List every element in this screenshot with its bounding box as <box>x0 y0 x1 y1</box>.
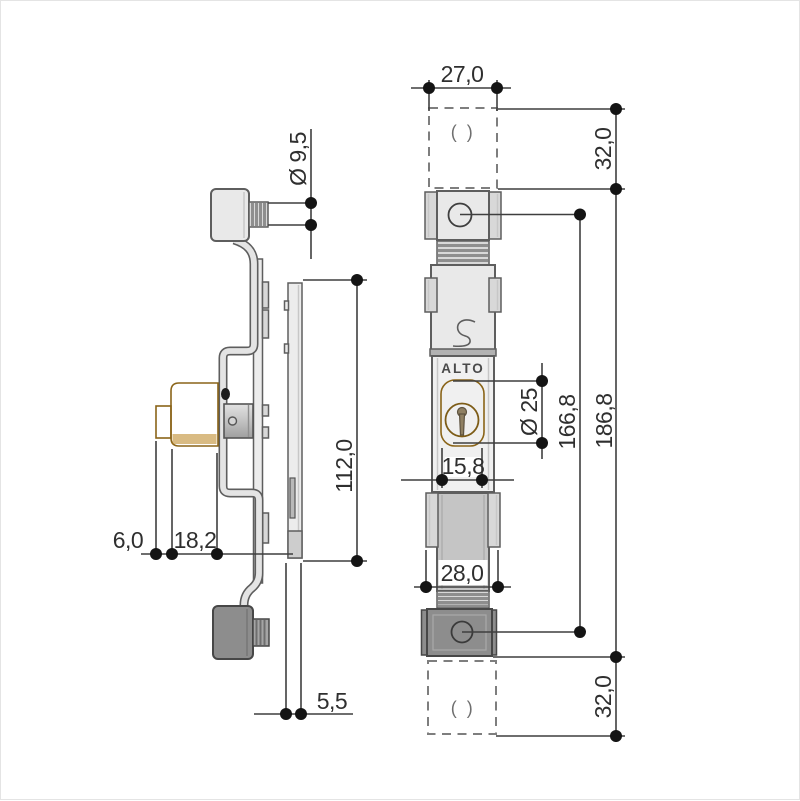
drawing-page: Ø 9,5 112,0 6,0 18,2 <box>0 0 800 800</box>
dim-total-length-label: 186,8 <box>591 393 617 448</box>
divider-bar <box>430 349 496 356</box>
dim-plate-height-label: 112,0 <box>331 439 357 492</box>
dim-cylinder-body-label: 18,2 <box>174 527 217 553</box>
dim-hole-pitch-label: 166,8 <box>554 394 580 449</box>
ribbed-section-top <box>437 241 489 265</box>
dim-plate-height: 112,0 <box>303 274 367 567</box>
dim-faceplate-thickness-label: 5,5 <box>317 688 347 714</box>
technical-drawing-canvas: Ø 9,5 112,0 6,0 18,2 <box>1 1 800 801</box>
upper-body-front <box>425 265 501 353</box>
dim-top-offset-label: 32,0 <box>590 128 616 171</box>
side-view: Ø 9,5 112,0 6,0 18,2 <box>113 129 367 720</box>
ribbed-section-bottom <box>437 591 489 608</box>
cylinder-shaft <box>224 404 253 438</box>
cylinder-pin <box>221 388 230 400</box>
dim-bolt-width-label: 28,0 <box>441 560 484 586</box>
dim-bottom-offset-label: 32,0 <box>590 676 616 719</box>
bottom-knob-side <box>253 619 269 646</box>
front-view: ( ) <box>401 61 625 742</box>
cylinder-shade <box>173 434 217 444</box>
top-guide-box-front <box>425 191 501 240</box>
dim-body-width-label: 27,0 <box>441 61 484 87</box>
dim-cylinder-step-label: 6,0 <box>113 527 143 553</box>
cylinder-step <box>156 406 171 438</box>
lock-cylinder-side <box>156 383 253 446</box>
dim-knob-diameter-label: Ø 9,5 <box>285 132 311 186</box>
top-guide-box-side <box>211 189 268 241</box>
top-slot-symbol: ( ) <box>451 122 476 142</box>
top-phantom-slot: ( ) <box>429 108 497 188</box>
bottom-phantom-slot: ( ) <box>428 661 496 734</box>
dim-body-width: 27,0 <box>411 61 511 111</box>
dim-cylinder-width-label: 15,8 <box>442 453 485 479</box>
bottom-guide-box-side <box>213 606 269 659</box>
top-knob-side <box>249 202 268 227</box>
bottom-slot-symbol: ( ) <box>451 698 476 718</box>
brand-label: ALTO <box>441 361 485 376</box>
dim-cylinder-diameter-label: Ø 25 <box>516 388 542 436</box>
faceplate-slot <box>290 478 295 518</box>
dim-knob-diameter: Ø 9,5 <box>268 129 317 259</box>
faceplate-side <box>285 283 303 558</box>
